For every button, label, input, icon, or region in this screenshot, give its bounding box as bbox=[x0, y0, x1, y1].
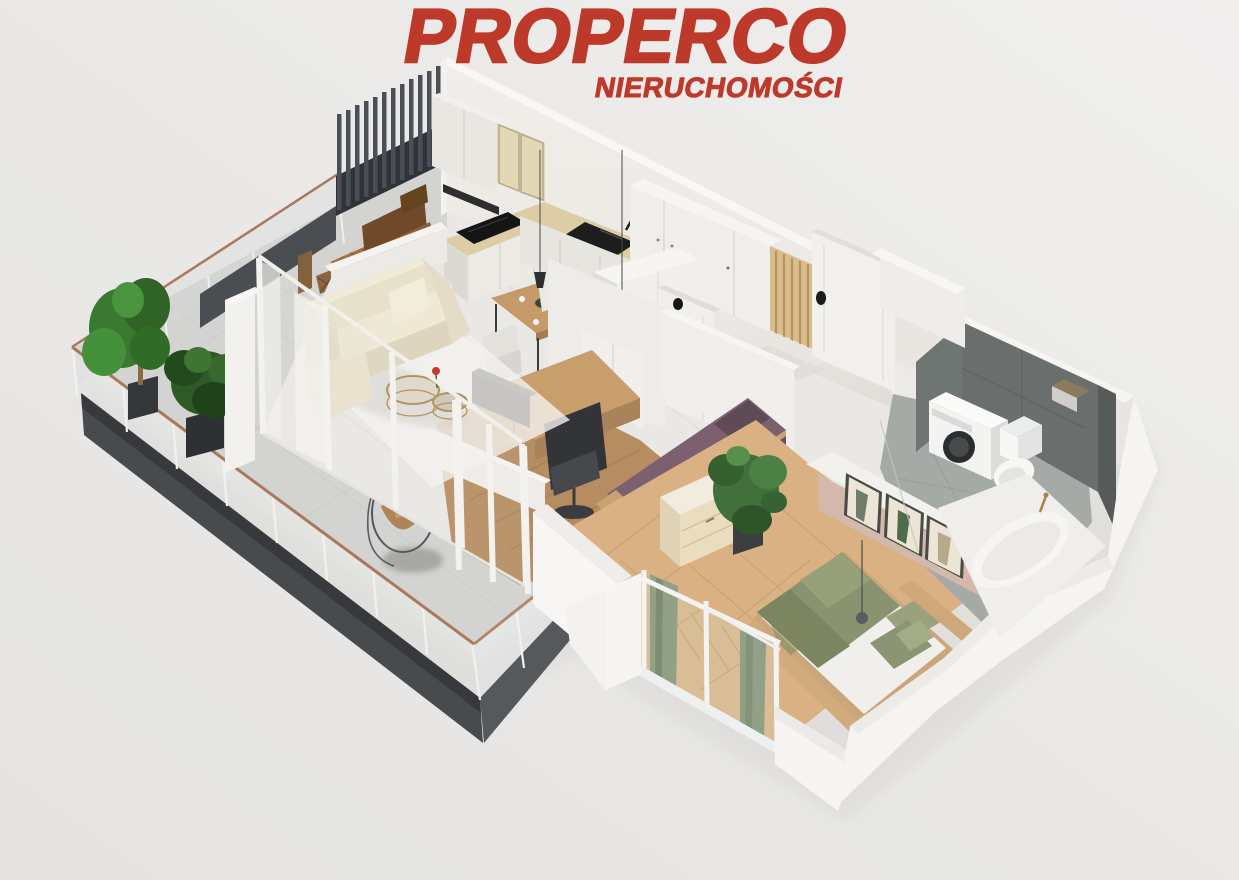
svg-text:PROPERCO: PROPERCO bbox=[398, 0, 856, 79]
svg-text:NIERUCHOMOŚCI: NIERUCHOMOŚCI bbox=[592, 71, 845, 103]
